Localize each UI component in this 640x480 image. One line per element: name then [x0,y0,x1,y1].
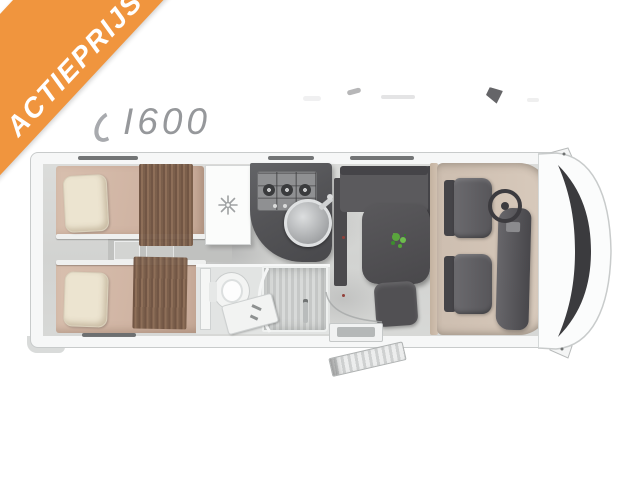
partial-character [89,108,125,145]
plant-icon [392,233,400,241]
pillow-top [63,174,110,233]
snowflake-icon [217,194,239,216]
burner [263,184,275,196]
window-top-dinette [350,156,414,160]
vanity-faucet-mark [251,304,261,311]
dinette-sofa-top-backrest [340,166,428,175]
model-label: I600 [123,101,211,143]
smudge-artifact [527,98,539,102]
front-nose [538,146,620,362]
mirror-dot [561,348,564,351]
toilet-tank [209,282,217,302]
fridge [205,165,251,245]
faucet-knob [327,194,333,200]
nose-body [538,153,611,349]
bed-throw-top [139,164,193,246]
dash-screen [506,222,520,232]
passenger-seat [454,254,492,314]
burner [281,184,293,196]
window-top-rear [78,156,138,160]
dinette-table [362,204,430,284]
vanity-faucet-mark [250,315,259,321]
dashboard [495,208,531,331]
model-title: I600 [96,101,211,143]
burner [299,184,311,196]
window-top-kitchen [268,156,314,160]
smudge-artifact [381,95,415,99]
smudge-artifact [347,87,362,95]
window-bottom-rear [82,333,136,337]
listing-image: I600 [0,0,640,480]
smudge-artifact [303,96,321,101]
entry-step-tread [337,327,375,337]
hob-knobs [273,204,277,208]
steering-wheel-hub [501,202,509,210]
smudge-artifact [485,87,503,105]
mirror-dot [563,153,566,156]
shower-handle [303,299,308,323]
driver-seat [454,178,492,238]
pillow-bottom [63,271,109,328]
indicator-dot [342,236,345,239]
bed-throw-bottom [132,257,187,330]
